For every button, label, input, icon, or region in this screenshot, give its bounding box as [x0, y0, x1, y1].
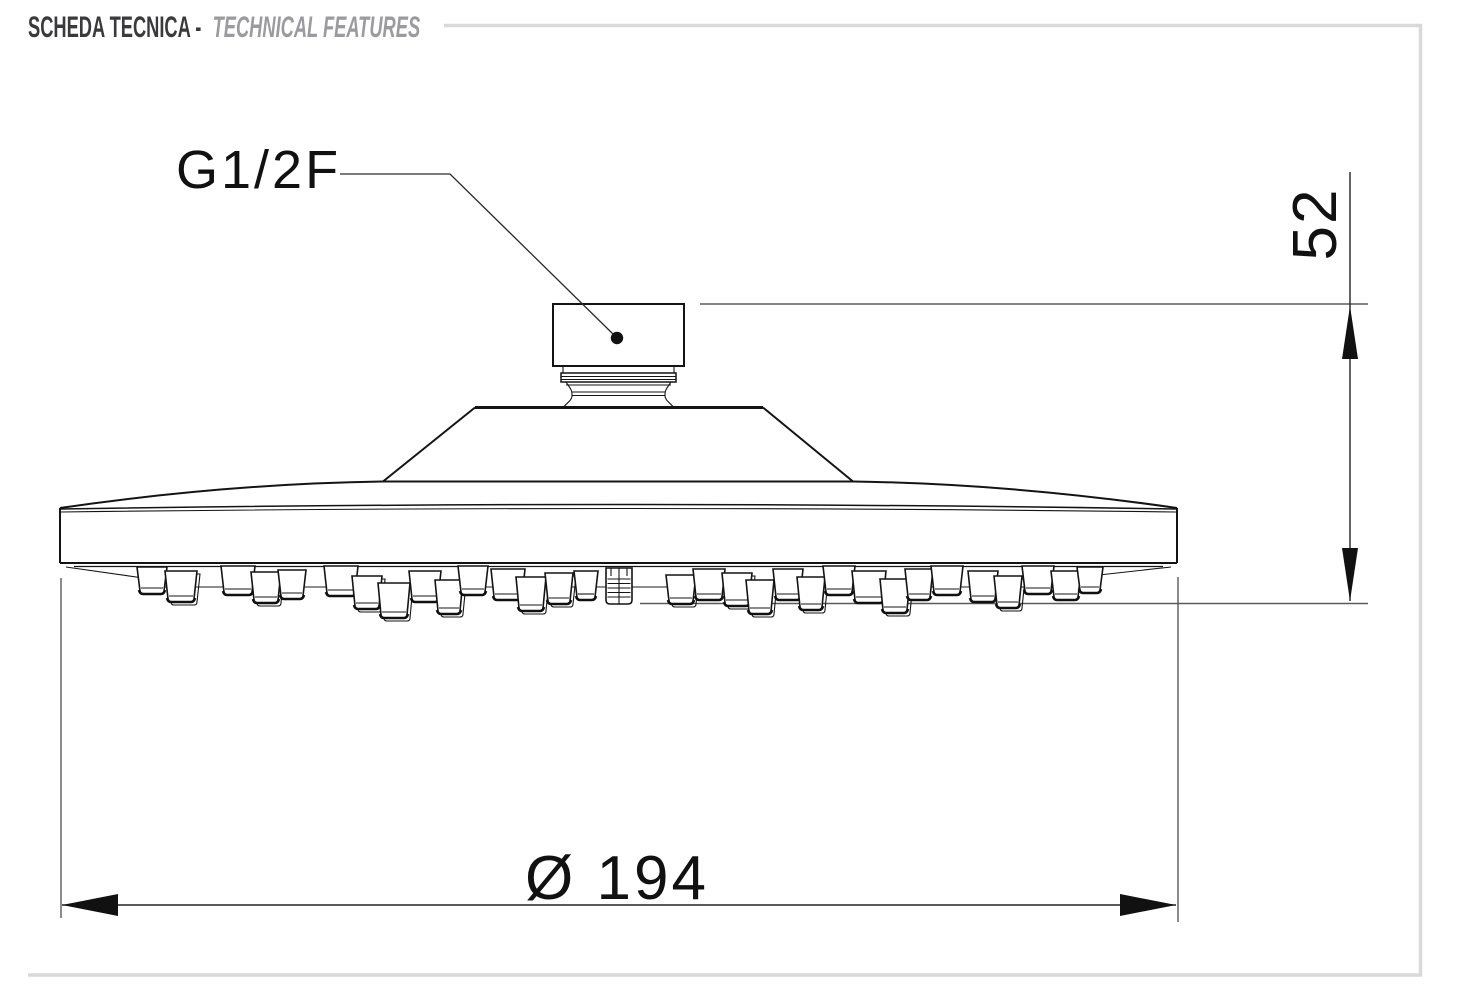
height-arrow-down	[1342, 548, 1358, 601]
diameter-arrow-right	[1120, 894, 1176, 916]
nozzle-cup	[574, 571, 598, 600]
height-arrow-up	[1342, 306, 1358, 359]
height-dimension-value: 52	[1281, 188, 1350, 261]
shower-head-drawing	[60, 174, 1177, 621]
page-title-primary: SCHEDA TECNICA -	[28, 12, 201, 44]
nozzle-cup	[458, 566, 488, 595]
nozzle-cup	[693, 569, 725, 600]
nozzle-cup	[137, 567, 167, 594]
nozzle-cup	[516, 577, 546, 611]
datasheet-page: SCHEDA TECNICA - TECHNICAL FEATURES	[0, 0, 1458, 1008]
nozzle-cup	[221, 566, 255, 595]
nozzle-cup	[666, 575, 696, 604]
center-threaded-nozzle	[606, 568, 632, 604]
nozzle-cup	[1051, 571, 1081, 600]
nozzle-cup	[905, 569, 933, 600]
diameter-dimension: Ø 194	[62, 844, 1176, 916]
page-title-secondary: TECHNICAL FEATURES	[213, 12, 421, 44]
nozzle-cup	[746, 580, 774, 614]
nozzle-cup	[797, 577, 825, 610]
diameter-arrow-left	[62, 894, 118, 916]
cone-section	[383, 408, 853, 482]
nozzle-cup	[378, 583, 410, 618]
height-dimension: 52	[1281, 172, 1358, 601]
nozzle-cup	[1022, 566, 1054, 594]
diameter-dimension-value: Ø 194	[525, 844, 709, 913]
nozzle-cup	[251, 572, 281, 603]
nozzle-cup	[352, 576, 382, 609]
nozzle-cup	[931, 566, 963, 595]
connector-neck	[553, 366, 684, 408]
nozzle-cup	[880, 579, 910, 613]
thread-leader-line	[340, 174, 613, 334]
nozzle-cup	[545, 573, 573, 604]
nozzle-cup	[994, 576, 1022, 608]
nozzle-cup	[823, 566, 855, 595]
page-title: SCHEDA TECNICA - TECHNICAL FEATURES	[28, 12, 421, 44]
thread-size-label: G1/2F	[176, 140, 341, 200]
extension-lines	[61, 304, 1368, 922]
body-dome	[60, 482, 1177, 580]
nozzle-cup	[1077, 567, 1103, 593]
technical-drawing-canvas: SCHEDA TECNICA - TECHNICAL FEATURES	[0, 0, 1458, 1008]
nozzle-cup	[435, 580, 463, 614]
nozzle-cup	[165, 571, 197, 602]
nozzle-cup	[278, 570, 306, 599]
